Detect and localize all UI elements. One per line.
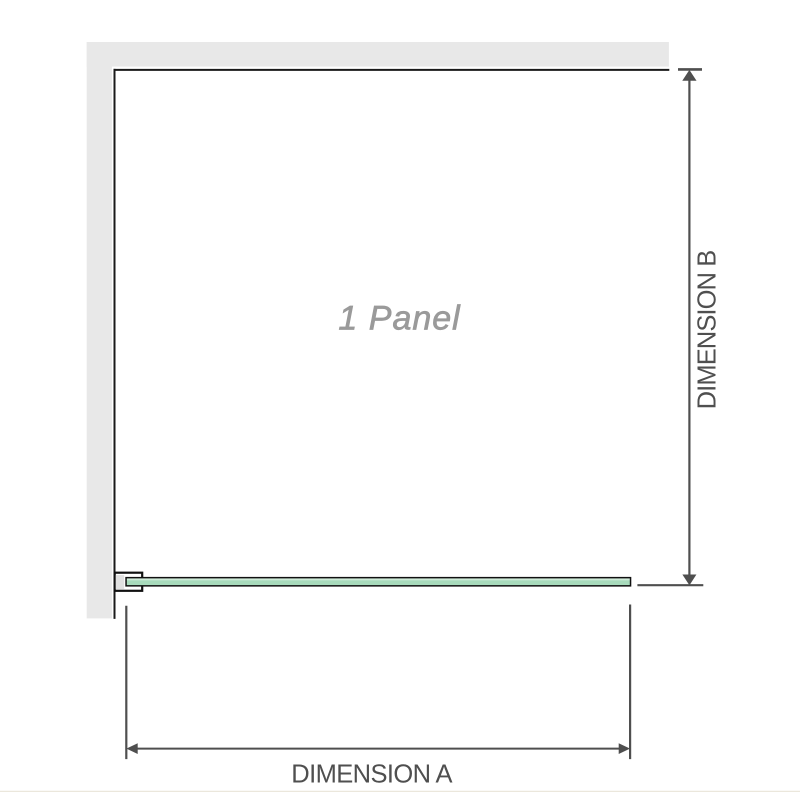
svg-text:1 Panel: 1 Panel <box>338 300 461 338</box>
svg-text:DIMENSION B: DIMENSION B <box>694 251 722 410</box>
svg-text:DIMENSION A: DIMENSION A <box>291 760 452 788</box>
